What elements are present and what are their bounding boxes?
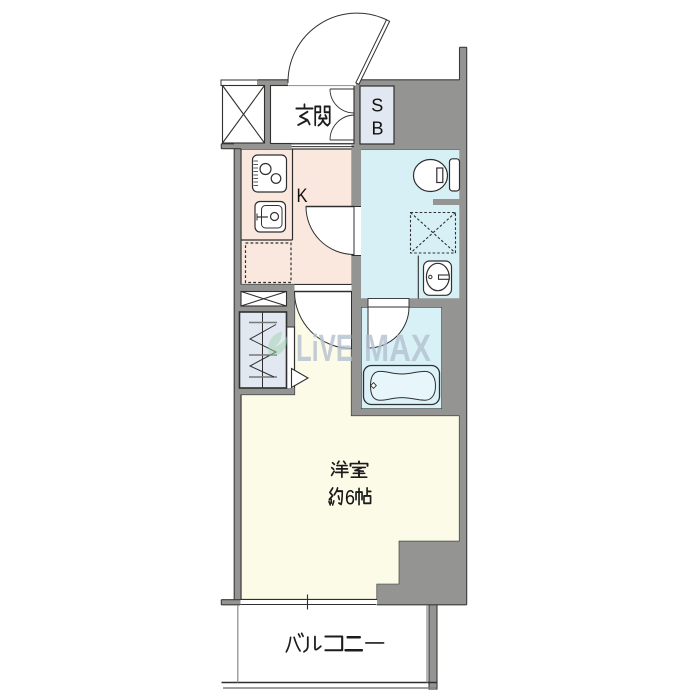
svg-text:K: K (297, 185, 308, 207)
svg-text:LiVE: LiVE (296, 328, 353, 370)
svg-text:6: 6 (345, 487, 355, 510)
svg-text:MAX: MAX (364, 328, 432, 370)
svg-text:B: B (371, 118, 383, 138)
svg-text:S: S (371, 95, 383, 115)
